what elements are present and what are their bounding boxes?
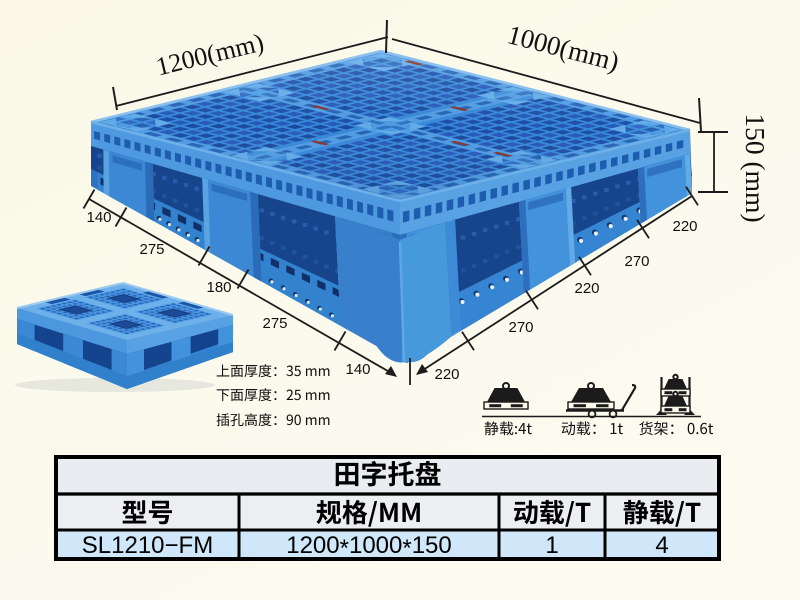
svg-text:4: 4	[655, 532, 668, 559]
svg-text:220: 220	[434, 366, 459, 383]
svg-text:1200*1000*150: 1200*1000*150	[286, 532, 452, 562]
svg-text:150 (mm): 150 (mm)	[740, 113, 771, 222]
svg-text:270: 270	[508, 319, 533, 336]
svg-text:220: 220	[574, 280, 599, 297]
svg-text:275: 275	[262, 315, 287, 332]
svg-text:180: 180	[206, 279, 231, 296]
svg-text:140: 140	[345, 361, 370, 378]
svg-text:275: 275	[139, 241, 164, 258]
svg-text:140: 140	[86, 209, 111, 226]
svg-text:SL1210−FM: SL1210−FM	[82, 532, 213, 559]
svg-text:1: 1	[545, 532, 558, 559]
svg-text:270: 270	[624, 253, 649, 270]
svg-text:220: 220	[672, 218, 697, 235]
